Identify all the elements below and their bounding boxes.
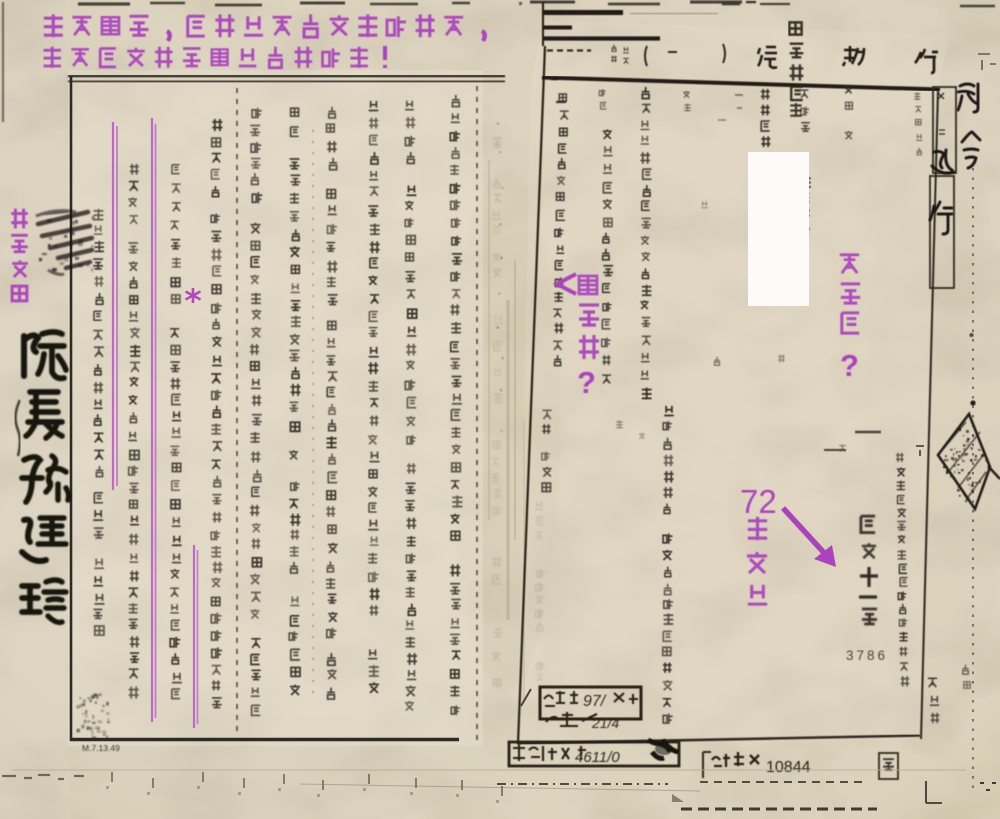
svg-text:3786: 3786 (846, 648, 888, 663)
svg-text:10844: 10844 (766, 759, 811, 776)
svg-text:M.7.13.49: M.7.13.49 (82, 743, 120, 753)
svg-text:21/4: 21/4 (591, 715, 619, 731)
svg-text:72: 72 (740, 483, 777, 520)
svg-text:4611/0: 4611/0 (575, 749, 620, 766)
svg-text:?: ? (840, 348, 859, 383)
svg-text:97/: 97/ (583, 693, 607, 710)
svg-text:?: ? (577, 365, 596, 400)
